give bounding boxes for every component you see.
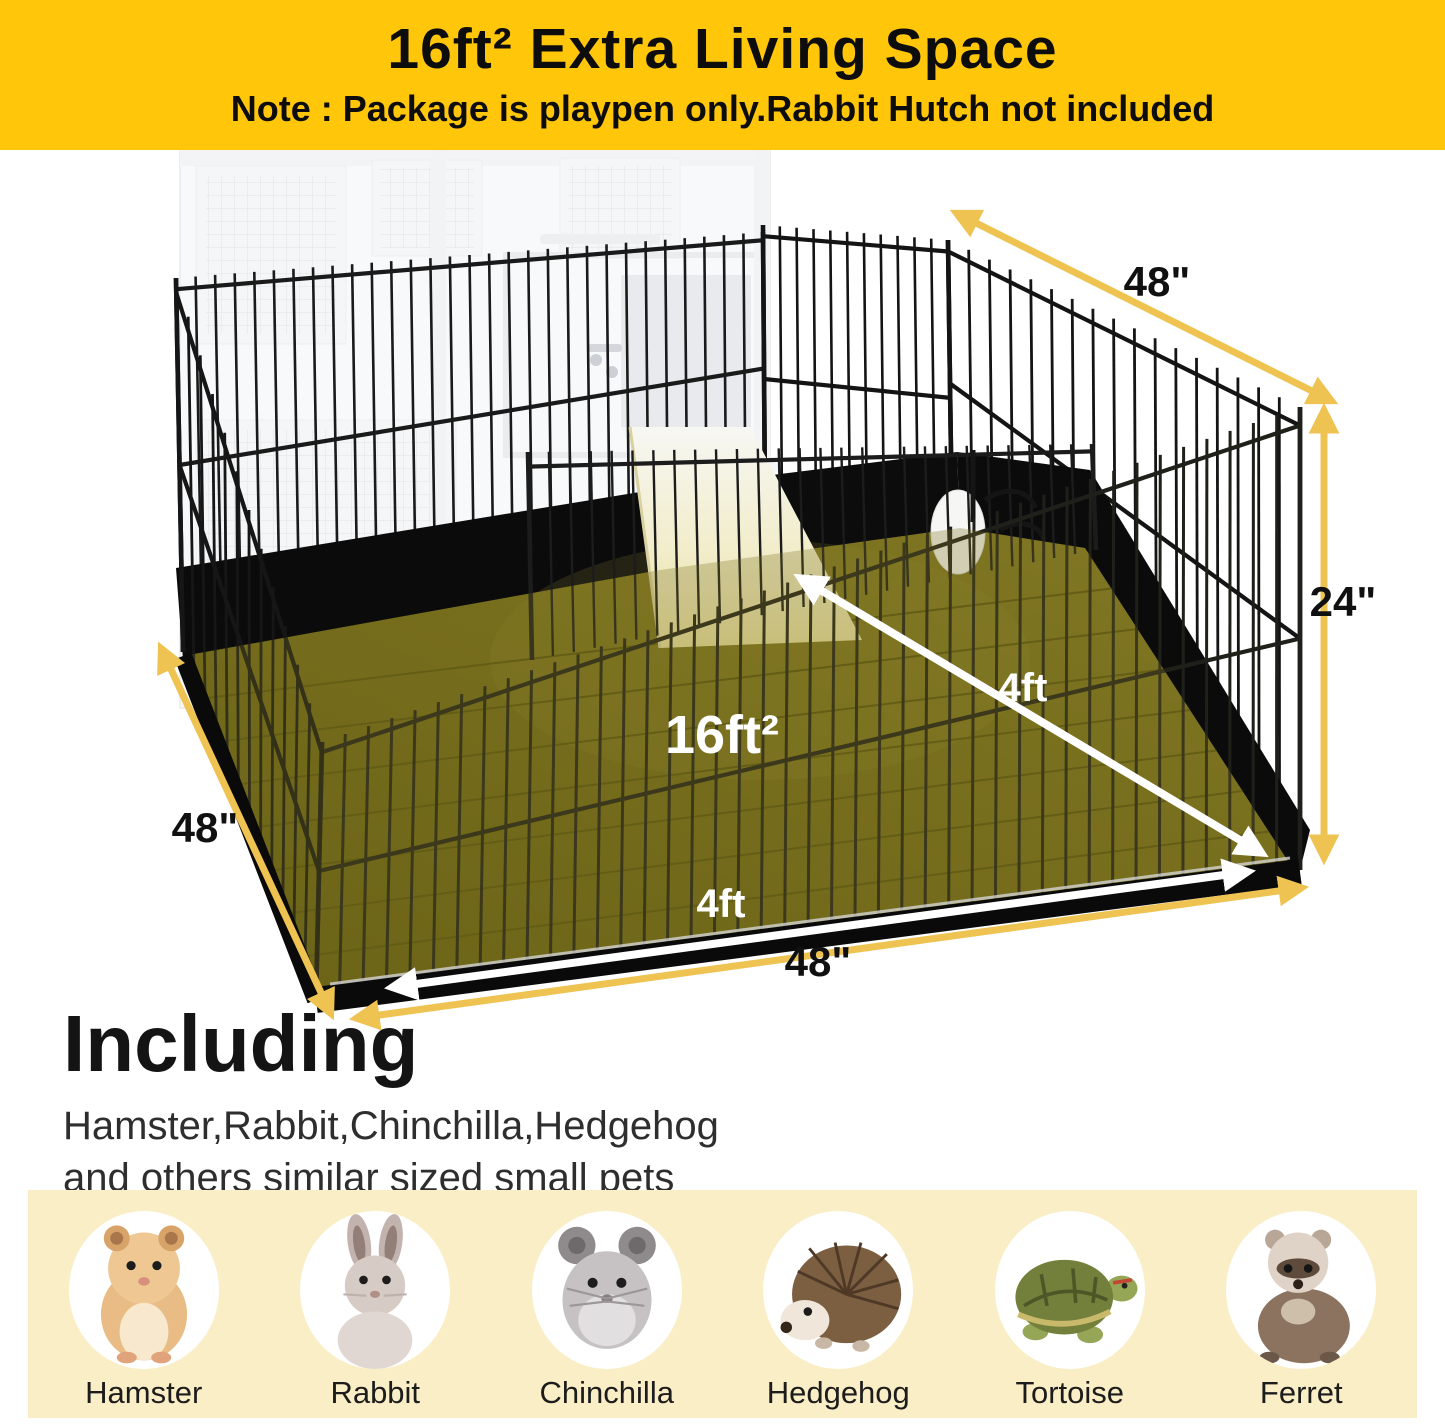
- including-section: Including Hamster,Rabbit,Chinchilla,Hedg…: [63, 998, 719, 1204]
- floor-side-label: 4ft: [963, 666, 1083, 711]
- including-heading: Including: [63, 998, 719, 1090]
- tortoise-icon: [995, 1211, 1145, 1369]
- dim-label-bottom-width: 48": [748, 938, 888, 986]
- chinchilla-icon: [532, 1211, 682, 1369]
- pet-label: Hamster: [28, 1375, 260, 1411]
- pet-card-ferret: Ferret: [1186, 1190, 1418, 1418]
- pet-card-chinchilla: Chinchilla: [491, 1190, 723, 1418]
- ferret-icon: [1226, 1211, 1376, 1369]
- pet-label: Tortoise: [954, 1375, 1186, 1411]
- banner-title: 16ft² Extra Living Space: [0, 0, 1445, 82]
- pet-card-tortoise: Tortoise: [954, 1190, 1186, 1418]
- pet-label: Rabbit: [260, 1375, 492, 1411]
- banner: 16ft² Extra Living Space Note : Package …: [0, 0, 1445, 150]
- pet-label: Chinchilla: [491, 1375, 723, 1411]
- floor-front-label: 4ft: [661, 882, 781, 927]
- banner-note: Note : Package is playpen only.Rabbit Hu…: [0, 88, 1445, 130]
- pet-label: Ferret: [1186, 1375, 1418, 1411]
- pet-card-rabbit: Rabbit: [260, 1190, 492, 1418]
- pet-card-hamster: Hamster: [28, 1190, 260, 1418]
- rabbit-icon: [300, 1211, 450, 1369]
- hedgehog-icon: [763, 1211, 913, 1369]
- pets-panel: Hamster Rabbit: [28, 1190, 1417, 1418]
- including-line1: Hamster,Rabbit,Chinchilla,Hedgehog: [63, 1100, 719, 1152]
- pet-label: Hedgehog: [723, 1375, 955, 1411]
- floor-area-label: 16ft²: [622, 704, 822, 766]
- pet-card-hedgehog: Hedgehog: [723, 1190, 955, 1418]
- dim-label-top-width: 48": [1077, 258, 1237, 306]
- dim-label-height: 24": [1283, 578, 1403, 626]
- hamster-icon: [69, 1211, 219, 1369]
- dim-label-left-depth: 48": [135, 804, 275, 852]
